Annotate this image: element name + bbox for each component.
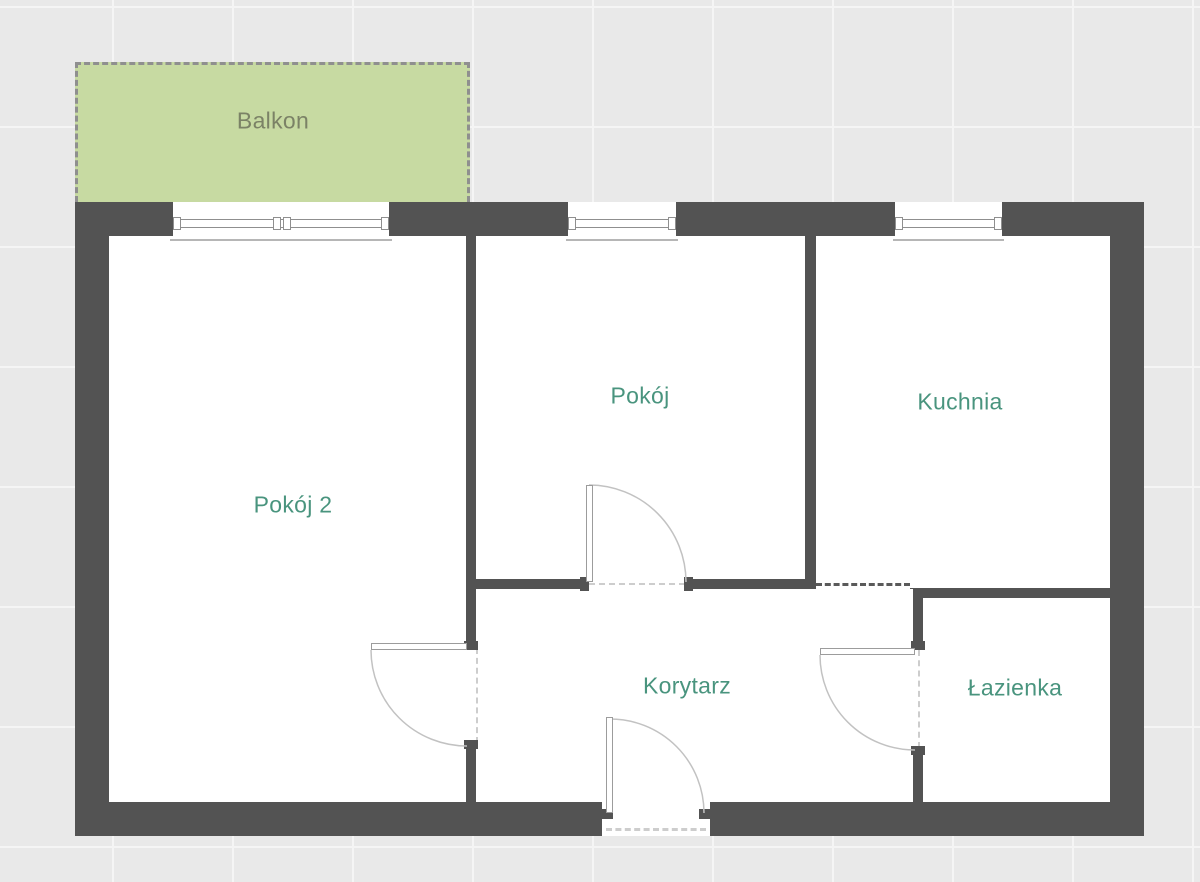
- window-cap: [668, 217, 676, 230]
- room-label-balkon: Balkon: [237, 108, 309, 135]
- window-frame: [574, 219, 670, 228]
- window-sill: [566, 239, 678, 241]
- room-label-pokoj: Pokój: [610, 383, 669, 410]
- window-cap: [568, 217, 576, 230]
- door-opening-pokoj2: [466, 643, 476, 748]
- door-leaf-lazienka[interactable]: [820, 648, 915, 655]
- door-jamb: [699, 809, 711, 819]
- door-jamb: [464, 740, 478, 749]
- window-sill: [893, 239, 1004, 241]
- room-label-korytarz: Korytarz: [643, 673, 731, 700]
- window-frame: [901, 219, 996, 228]
- room-label-kuchnia: Kuchnia: [917, 389, 1002, 416]
- window-pokoj2[interactable]: [173, 202, 389, 236]
- door-jamb: [911, 746, 925, 755]
- door-leaf-entry[interactable]: [606, 717, 613, 813]
- window-cap: [895, 217, 903, 230]
- threshold-dash-entry: [606, 828, 706, 831]
- window-pokoj[interactable]: [568, 202, 676, 236]
- window-cap: [283, 217, 291, 230]
- window-cap: [381, 217, 389, 230]
- window-cap: [994, 217, 1002, 230]
- room-floor-pokoj2[interactable]: [109, 236, 466, 802]
- floorplan-canvas: Balkon Pokój 2 Pokój Kuchnia Korytarz Ła…: [0, 0, 1200, 882]
- window-frame: [179, 219, 383, 228]
- threshold-dash-pokoj2: [476, 648, 478, 743]
- window-kuchnia[interactable]: [895, 202, 1002, 236]
- room-label-pokoj2: Pokój 2: [254, 492, 333, 519]
- room-label-lazienka: Łazienka: [968, 675, 1062, 702]
- window-cap: [273, 217, 281, 230]
- door-jamb: [684, 577, 693, 591]
- door-leaf-pokoj[interactable]: [586, 485, 593, 582]
- threshold-dash-lazienka: [918, 650, 920, 748]
- threshold-dash-pokoj: [589, 583, 685, 585]
- window-cap: [173, 217, 181, 230]
- window-sill: [170, 239, 392, 241]
- door-leaf-pokoj2[interactable]: [371, 643, 467, 650]
- passage-dashed-line: [816, 583, 910, 586]
